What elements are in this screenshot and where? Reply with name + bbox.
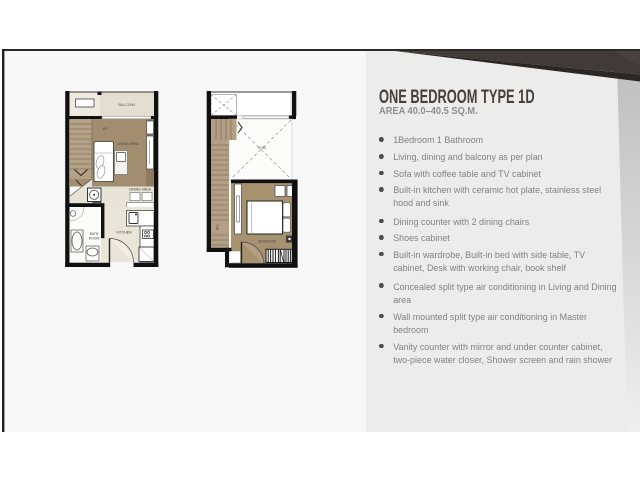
svg-text:DN.: DN. [216, 224, 220, 230]
svg-text:BEDROOM: BEDROOM [258, 240, 276, 244]
svg-text:VOID: VOID [258, 146, 267, 150]
